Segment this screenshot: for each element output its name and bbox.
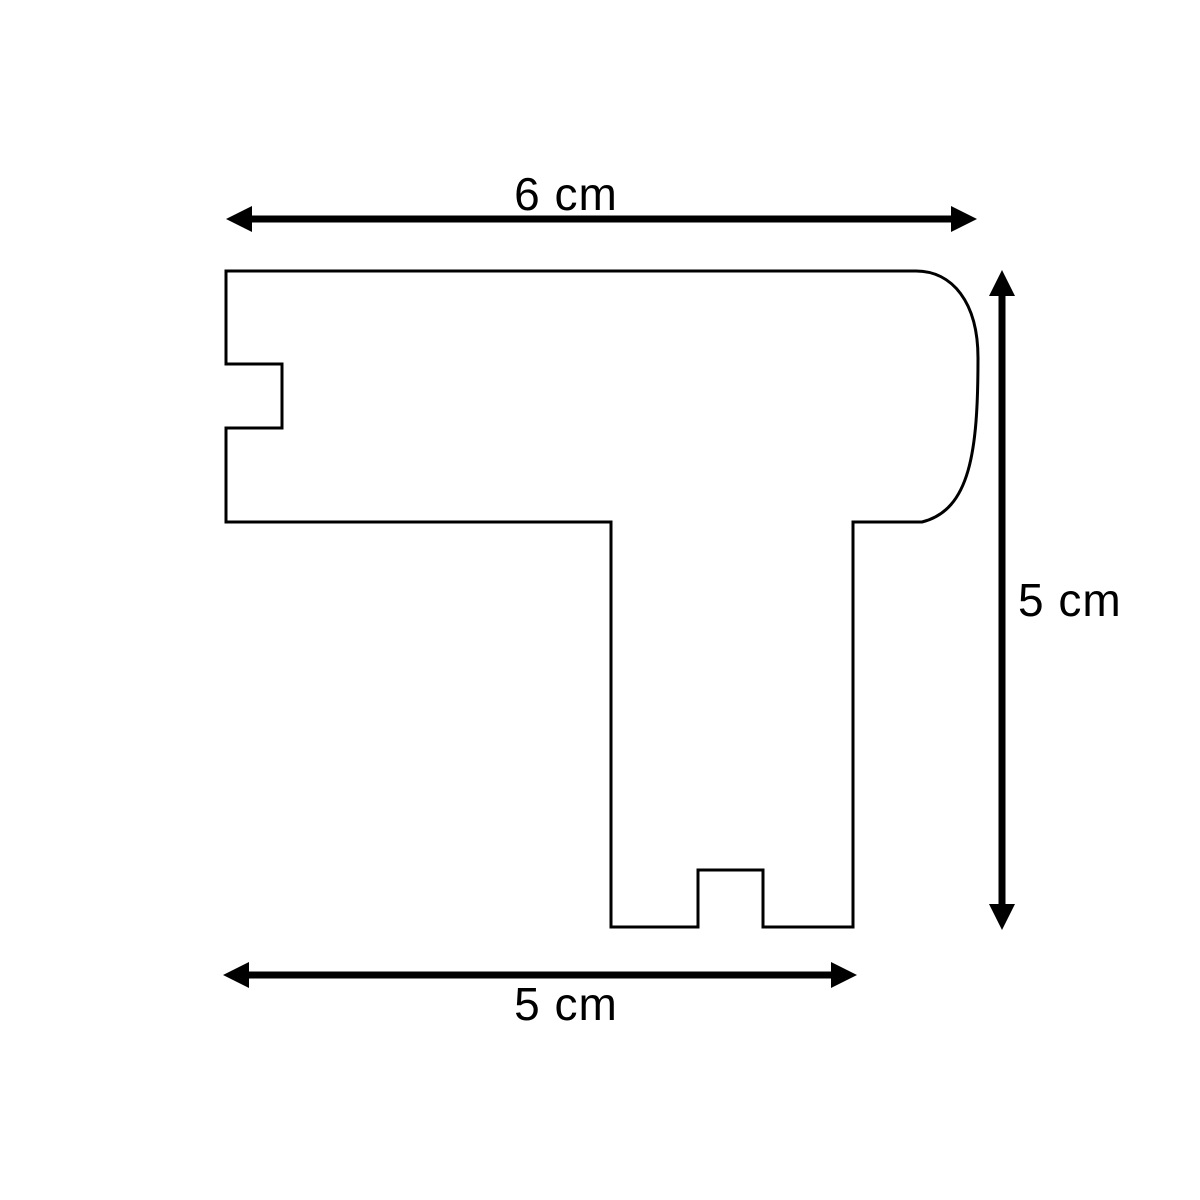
arrowhead-left-icon: [223, 962, 249, 988]
arrowhead-down-icon: [989, 904, 1015, 930]
profile-outline: [226, 271, 978, 927]
arrowhead-right-icon: [951, 206, 977, 232]
dimension-label-bottom: 5 cm: [514, 978, 618, 1030]
dimension-label-top: 6 cm: [514, 168, 618, 220]
arrowhead-right-icon: [831, 962, 857, 988]
dimension-label-right: 5 cm: [1018, 574, 1122, 626]
arrowhead-up-icon: [989, 270, 1015, 296]
dimension-arrow-top: 6 cm: [226, 168, 977, 232]
profile-diagram: 6 cm 5 cm 5 cm: [0, 0, 1200, 1200]
dimension-arrow-right: 5 cm: [989, 270, 1122, 930]
arrowhead-left-icon: [226, 206, 252, 232]
diagram-canvas: 6 cm 5 cm 5 cm: [0, 0, 1200, 1200]
dimension-arrow-bottom: 5 cm: [223, 962, 857, 1030]
